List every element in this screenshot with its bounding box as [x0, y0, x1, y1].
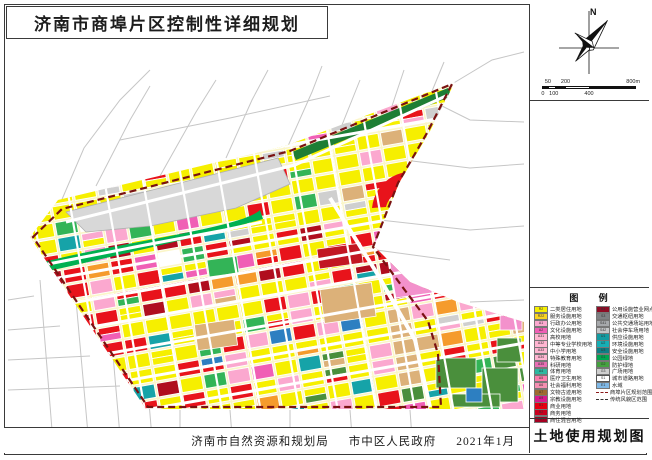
legend-line-symbol [596, 392, 608, 393]
legend-label: 服务设施用地 [550, 313, 582, 320]
legend-swatch: S3 [596, 313, 610, 320]
legend-swatch: B1 [534, 402, 548, 409]
legend-label: 公共交通场站用地 [612, 320, 652, 327]
legend-label: 商埠片区规划范围 [610, 389, 652, 396]
scale-label: 800m [626, 79, 640, 85]
legend-swatch: R22 [534, 313, 548, 320]
legend-swatch: A9 [534, 396, 548, 403]
legend-item: 传统风貌区范围 [596, 396, 652, 403]
legend-swatch: G1 [596, 354, 610, 361]
legend-label: 中等专业学校用地 [550, 340, 592, 347]
legend-swatch: R2 [534, 306, 548, 313]
legend-item: B1商业用地 [534, 402, 593, 409]
legend-swatch: B2 [534, 409, 548, 416]
legend-label: 交通枢纽用地 [612, 313, 644, 320]
legend-swatch: S1 [596, 375, 610, 382]
legend-swatch: U3 [596, 347, 610, 354]
legend-item: B4公用设施营业网点用地 [596, 306, 652, 313]
legend-item: A33中小学用地 [534, 347, 593, 354]
legend-swatch: B4 [596, 306, 610, 313]
legend-label: 社会停车场用地 [612, 327, 649, 334]
legend-swatch: U1 [596, 334, 610, 341]
legend-label: 特殊教育用地 [550, 354, 582, 361]
legend-label: 商业用地 [550, 402, 571, 409]
legend-column-right: B4公用设施营业网点用地S3交通枢纽用地S41公共交通场站用地S42社会停车场用… [596, 306, 652, 423]
legend-item: R22服务设施用地 [534, 313, 593, 320]
legend-swatch: A2 [534, 327, 548, 334]
footer-government: 市中区人民政府 [349, 433, 437, 449]
legend-item: A2文化设施用地 [534, 327, 593, 334]
legend-item: A4体育用地 [534, 368, 593, 375]
legend-swatch: E1 [596, 382, 610, 389]
scale-segment [566, 87, 589, 88]
map-title: 土地使用规划图 [534, 426, 646, 446]
footer-date: 2021年1月 [456, 433, 515, 449]
legend-item: 商埠片区规划范围 [596, 389, 652, 396]
scale-label: 100 [549, 91, 558, 97]
scale-segment [555, 87, 567, 88]
legend-item: R2二类居住用地 [534, 306, 593, 313]
legend-item: S3交通枢纽用地 [596, 313, 652, 320]
legend-label: 社会福利用地 [550, 382, 582, 389]
scale-label: 50 [545, 79, 551, 85]
legend-label: 水域 [612, 382, 623, 389]
legend-item: G1公园绿地 [596, 354, 652, 361]
legend-label: 文物古迹用地 [550, 389, 582, 396]
legend-item: B2商务用地 [534, 409, 593, 416]
legend-label: 行政办公用地 [550, 320, 582, 327]
legend-item: U1供应设施用地 [596, 334, 652, 341]
legend-label: 医疗卫生用地 [550, 375, 582, 382]
legend-item: A1行政办公用地 [534, 320, 593, 327]
legend-label: 科研用地 [550, 361, 571, 368]
legend-item: U2环境设施用地 [596, 340, 652, 347]
north-arrow-icon [554, 6, 624, 76]
legend-swatch: A33 [534, 347, 548, 354]
legend-label: 中小学用地 [550, 347, 576, 354]
legend-label: 公园绿地 [612, 354, 633, 361]
legend-swatch: A31 [534, 334, 548, 341]
legend-label: 文化设施用地 [550, 327, 582, 334]
footer-agency: 济南市自然资源和规划局 [191, 433, 329, 449]
plan-sheet: 济南市商埠片区控制性详细规划 N 50200800m [0, 0, 652, 460]
legend-item: S41公共交通场站用地 [596, 320, 652, 327]
scale-label: 400 [584, 91, 593, 97]
legend-swatch: G2 [596, 361, 610, 368]
legend-label: 安全设施用地 [612, 347, 644, 354]
legend-item: A35科研用地 [534, 361, 593, 368]
legend-swatch: A32 [534, 340, 548, 347]
legend-swatch: A4 [534, 368, 548, 375]
legend-swatch: A5 [534, 375, 548, 382]
legend-swatch: A1 [534, 320, 548, 327]
legend-item: A31高校用地 [534, 334, 593, 341]
legend-label: 环境设施用地 [612, 340, 644, 347]
legend-item: A5医疗卫生用地 [534, 375, 593, 382]
legend-item: S42社会停车场用地 [596, 327, 652, 334]
legend-label: 高校用地 [550, 334, 571, 341]
legend-item: A34特殊教育用地 [534, 354, 593, 361]
legend-item: G2防护绿地 [596, 361, 652, 368]
legend-title: 图 例 [540, 291, 646, 304]
scale-bar-track [542, 86, 636, 89]
legend-item: A32中等专业学校用地 [534, 340, 593, 347]
legend-item: U3安全设施用地 [596, 347, 652, 354]
scale-label: 200 [561, 79, 570, 85]
legend-item: S1城市道路用地 [596, 375, 652, 382]
plan-title-box: 济南市商埠片区控制性详细规划 [6, 6, 328, 39]
legend-label: 商住混合用地 [550, 416, 582, 423]
legend-label: 城市道路用地 [612, 375, 644, 382]
legend-label: 广场用地 [612, 368, 633, 375]
legend-label: 商务用地 [550, 409, 571, 416]
legend-label: 二类居住用地 [550, 306, 582, 313]
legend-swatch: A35 [534, 361, 548, 368]
legend-item: A7文物古迹用地 [534, 389, 593, 396]
legend-label: 体育用地 [550, 368, 571, 375]
compass-scale-box: N 50200800m0100400 [530, 4, 649, 101]
legend-line-symbol [596, 399, 608, 400]
legend-label: 防护绿地 [612, 361, 633, 368]
legend-swatch: S42 [596, 327, 610, 334]
scale-bar: 50200800m0100400 [542, 78, 636, 98]
legend-swatch: G3 [596, 368, 610, 375]
legend-swatch: S41 [596, 320, 610, 327]
legend-label: 传统风貌区范围 [610, 396, 647, 403]
legend-item: G3广场用地 [596, 368, 652, 375]
scale-label: 0 [541, 91, 544, 97]
legend-item: E1水域 [596, 382, 652, 389]
legend: 图 例 R2二类居住用地R22服务设施用地A1行政办公用地A2文化设施用地A31… [530, 287, 649, 418]
panel-spacer [530, 101, 649, 287]
side-panel: N 50200800m0100400 图 例 R2二类居住用地R22服务设施用地… [529, 4, 649, 453]
legend-item: A9宗教设施用地 [534, 396, 593, 403]
legend-column-left: R2二类居住用地R22服务设施用地A1行政办公用地A2文化设施用地A31高校用地… [534, 306, 593, 423]
legend-swatch: A6 [534, 382, 548, 389]
legend-swatch: A34 [534, 354, 548, 361]
legend-swatch: U2 [596, 340, 610, 347]
legend-swatch: A7 [534, 389, 548, 396]
legend-item: A6社会福利用地 [534, 382, 593, 389]
north-label: N [590, 7, 597, 17]
map-title-box: 土地使用规划图 [530, 418, 649, 453]
legend-label: 供应设施用地 [612, 334, 644, 341]
scale-segment [589, 87, 635, 88]
plan-title: 济南市商埠片区控制性详细规划 [34, 10, 300, 35]
legend-label: 公用设施营业网点用地 [612, 306, 652, 313]
footer: 济南市自然资源和规划局 市中区人民政府 2021年1月 [4, 427, 529, 453]
legend-label: 宗教设施用地 [550, 396, 582, 403]
